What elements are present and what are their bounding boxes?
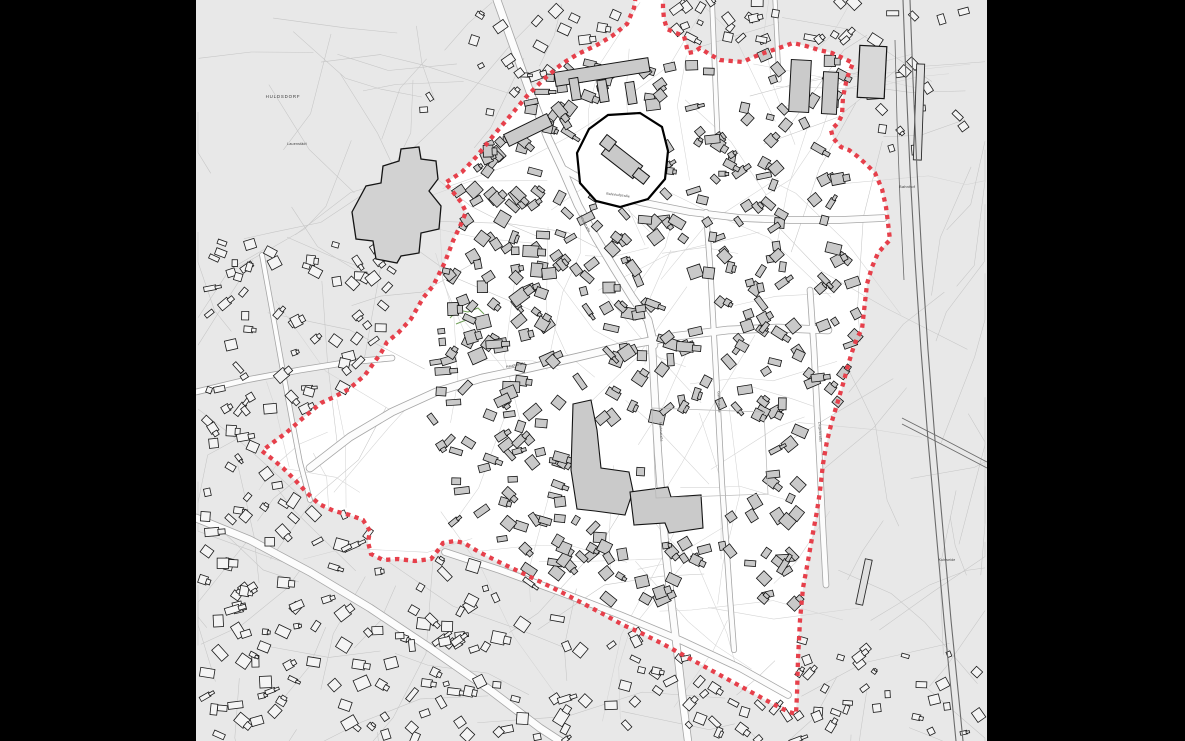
building	[497, 535, 508, 542]
building	[554, 514, 565, 523]
building	[217, 705, 227, 712]
building	[872, 704, 881, 713]
field-label: Kuhweide	[939, 558, 956, 562]
building	[486, 108, 494, 115]
building	[438, 328, 445, 334]
building	[408, 639, 415, 651]
east-long-building	[821, 72, 838, 115]
building	[542, 267, 557, 279]
building	[536, 231, 549, 239]
building	[213, 615, 223, 627]
letterbox-left	[0, 0, 196, 741]
building	[210, 704, 218, 716]
building	[686, 60, 698, 70]
building	[530, 263, 542, 278]
building	[637, 666, 645, 673]
station-label: Bahnhof	[899, 184, 916, 189]
building	[878, 124, 886, 133]
building	[263, 403, 277, 414]
building	[420, 107, 428, 113]
building	[703, 68, 714, 75]
building	[667, 353, 674, 366]
building	[272, 481, 283, 489]
building	[737, 385, 753, 396]
building	[739, 102, 750, 114]
building	[454, 486, 470, 495]
building	[503, 411, 515, 418]
building	[217, 558, 229, 568]
building	[771, 9, 779, 18]
building	[200, 511, 210, 521]
building	[766, 470, 780, 478]
building	[493, 681, 501, 688]
building	[395, 632, 404, 638]
building	[446, 399, 461, 406]
building	[887, 11, 899, 16]
building	[635, 575, 650, 589]
letterbox-right	[987, 0, 1185, 741]
building	[229, 559, 238, 567]
building	[579, 286, 588, 296]
street-label: Gartenstraße	[717, 391, 722, 412]
map-viewport: HULDSDORFLauenstädtBahnhofKuhweideBahnho…	[0, 0, 1185, 741]
building	[535, 419, 547, 428]
building	[702, 267, 714, 279]
field-label: Lauenstädt	[287, 142, 307, 146]
building	[439, 338, 446, 346]
building	[259, 676, 271, 688]
building	[554, 496, 566, 507]
building	[757, 283, 765, 293]
building	[916, 682, 927, 688]
district-label: HULDSDORF	[266, 94, 301, 99]
building	[474, 259, 483, 269]
building	[638, 215, 652, 224]
building	[885, 691, 891, 698]
building	[442, 268, 450, 275]
northeast-large-building	[857, 45, 887, 98]
building	[635, 305, 646, 313]
building	[745, 278, 754, 287]
building	[233, 272, 243, 281]
building	[224, 339, 237, 351]
building	[209, 438, 219, 448]
building	[482, 585, 488, 592]
building	[307, 657, 321, 668]
building	[533, 733, 541, 740]
building	[228, 701, 244, 710]
building	[203, 488, 211, 497]
building	[778, 398, 786, 410]
building	[332, 276, 342, 286]
building	[709, 232, 717, 242]
building	[372, 626, 383, 635]
building	[843, 700, 853, 705]
building	[452, 478, 461, 485]
building	[636, 467, 644, 476]
building	[436, 387, 446, 396]
building	[508, 476, 518, 482]
building	[232, 260, 238, 267]
building	[605, 701, 618, 710]
building	[242, 311, 249, 320]
building	[751, 0, 763, 7]
building	[438, 636, 451, 646]
building	[779, 262, 787, 272]
building	[928, 694, 941, 706]
building	[745, 560, 756, 566]
building	[723, 32, 734, 43]
building	[943, 702, 950, 710]
building	[516, 712, 528, 724]
building	[511, 247, 519, 255]
building	[617, 548, 628, 561]
building	[637, 351, 647, 361]
building	[265, 538, 275, 546]
building	[199, 667, 215, 678]
building	[705, 134, 721, 144]
building	[441, 621, 452, 631]
building	[375, 324, 386, 332]
east-long-building	[789, 60, 812, 113]
